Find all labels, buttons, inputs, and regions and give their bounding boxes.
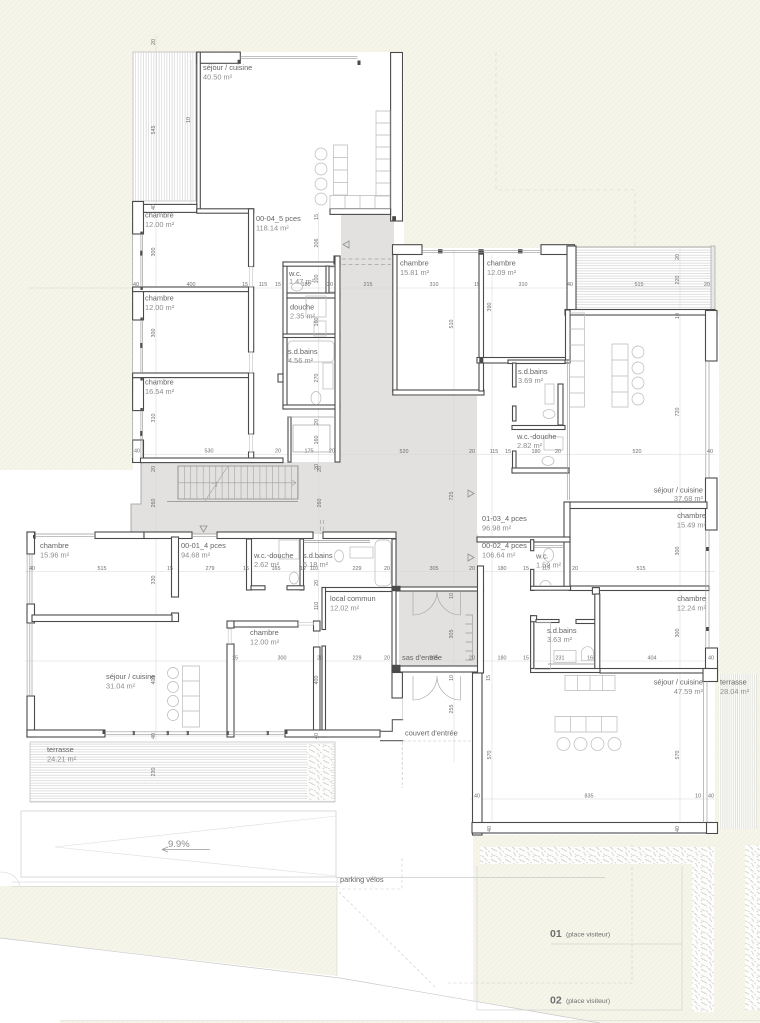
svg-text:31.04 m²: 31.04 m² xyxy=(106,682,136,691)
svg-text:520: 520 xyxy=(400,449,409,455)
svg-text:w.c.-douche: w.c.-douche xyxy=(253,551,293,560)
svg-text:15: 15 xyxy=(474,282,480,288)
svg-text:20: 20 xyxy=(275,449,281,455)
svg-text:local commun: local commun xyxy=(330,594,376,603)
svg-text:couvert d'entrée: couvert d'entrée xyxy=(405,729,458,738)
svg-text:chambre: chambre xyxy=(145,378,174,387)
svg-text:s.d.bains: s.d.bains xyxy=(518,367,548,376)
svg-text:15: 15 xyxy=(505,449,511,455)
svg-text:12.02 m²: 12.02 m² xyxy=(330,604,360,613)
svg-text:37.68 m²: 37.68 m² xyxy=(674,494,704,503)
svg-text:20: 20 xyxy=(572,566,578,572)
svg-text:12: 12 xyxy=(300,566,306,572)
svg-text:20: 20 xyxy=(555,449,561,455)
svg-text:180: 180 xyxy=(532,449,541,455)
svg-text:w.c.-douche: w.c.-douche xyxy=(516,432,556,441)
svg-text:chambre: chambre xyxy=(145,211,174,220)
svg-text:12.24 m²: 12.24 m² xyxy=(677,604,707,613)
svg-text:3.69 m²: 3.69 m² xyxy=(518,376,544,385)
svg-text:2.35 m²: 2.35 m² xyxy=(290,312,316,321)
svg-text:160: 160 xyxy=(314,318,320,327)
svg-text:94.68 m²: 94.68 m² xyxy=(181,551,211,560)
svg-text:20: 20 xyxy=(151,466,157,472)
svg-text:20: 20 xyxy=(384,656,390,662)
svg-text:510: 510 xyxy=(449,320,455,329)
svg-text:60: 60 xyxy=(131,730,136,735)
svg-text:s.d.bains: s.d.bains xyxy=(547,626,577,635)
svg-text:20: 20 xyxy=(675,254,681,260)
svg-text:400: 400 xyxy=(187,282,196,288)
svg-text:279: 279 xyxy=(206,566,215,572)
svg-text:100: 100 xyxy=(314,275,320,284)
svg-text:chambre: chambre xyxy=(145,294,174,303)
svg-text:40.50 m²: 40.50 m² xyxy=(203,73,233,82)
svg-text:20: 20 xyxy=(317,656,323,662)
svg-text:10: 10 xyxy=(675,313,681,319)
svg-text:96.98 m²: 96.98 m² xyxy=(482,524,512,533)
svg-text:16: 16 xyxy=(587,656,593,662)
svg-text:400: 400 xyxy=(314,676,320,685)
svg-text:305: 305 xyxy=(449,630,455,639)
svg-text:(place visiteur): (place visiteur) xyxy=(566,998,610,1005)
svg-text:20: 20 xyxy=(327,282,333,288)
svg-text:40: 40 xyxy=(151,733,157,739)
svg-text:10: 10 xyxy=(449,593,455,599)
svg-text:séjour / cuisine: séjour / cuisine xyxy=(106,672,155,681)
svg-text:330: 330 xyxy=(151,576,157,585)
svg-text:215: 215 xyxy=(364,282,373,288)
svg-text:02: 02 xyxy=(550,995,562,1007)
svg-text:15: 15 xyxy=(242,282,248,288)
svg-text:20: 20 xyxy=(314,419,320,425)
svg-text:chambre: chambre xyxy=(487,259,516,268)
svg-text:400: 400 xyxy=(151,676,157,685)
svg-text:40: 40 xyxy=(707,449,713,455)
svg-text:160: 160 xyxy=(314,436,320,445)
svg-text:terrasse: terrasse xyxy=(720,678,747,687)
svg-text:530: 530 xyxy=(205,449,214,455)
svg-text:60: 60 xyxy=(165,730,170,735)
svg-text:12.00 m²: 12.00 m² xyxy=(250,638,280,647)
svg-text:40: 40 xyxy=(708,794,714,800)
svg-text:9.9%: 9.9% xyxy=(168,839,190,850)
svg-text:40: 40 xyxy=(487,826,493,832)
svg-text:15: 15 xyxy=(275,282,281,288)
svg-text:chambre: chambre xyxy=(40,541,69,550)
svg-text:310: 310 xyxy=(430,282,439,288)
svg-text:115: 115 xyxy=(542,566,551,572)
svg-text:15.49 m²: 15.49 m² xyxy=(677,521,707,530)
svg-text:180: 180 xyxy=(498,566,507,572)
svg-text:106.64 m²: 106.64 m² xyxy=(482,551,516,560)
svg-text:180: 180 xyxy=(302,282,311,288)
svg-text:47.59 m²: 47.59 m² xyxy=(674,687,704,696)
svg-text:01: 01 xyxy=(550,928,562,940)
svg-text:15.96 m²: 15.96 m² xyxy=(40,551,70,560)
svg-text:230: 230 xyxy=(151,768,157,777)
svg-text:douche: douche xyxy=(290,303,314,312)
svg-text:720: 720 xyxy=(675,408,681,417)
svg-text:110: 110 xyxy=(314,602,320,611)
svg-text:260: 260 xyxy=(317,499,323,508)
svg-text:séjour / cuisine: séjour / cuisine xyxy=(203,63,252,72)
svg-text:terrasse: terrasse xyxy=(47,745,74,754)
svg-text:10: 10 xyxy=(695,794,701,800)
svg-text:260: 260 xyxy=(151,499,157,508)
svg-text:3.63 m²: 3.63 m² xyxy=(547,635,573,644)
svg-text:60: 60 xyxy=(185,730,190,735)
svg-text:570: 570 xyxy=(675,751,681,760)
svg-text:255: 255 xyxy=(449,705,455,714)
svg-text:220: 220 xyxy=(675,276,681,285)
svg-text:60: 60 xyxy=(265,730,270,735)
svg-text:229: 229 xyxy=(353,566,362,572)
svg-text:300: 300 xyxy=(151,248,157,257)
svg-text:390: 390 xyxy=(487,303,493,312)
svg-text:chambre: chambre xyxy=(400,259,429,268)
svg-text:570: 570 xyxy=(487,751,493,760)
svg-text:10: 10 xyxy=(449,675,455,681)
svg-text:20: 20 xyxy=(317,466,323,472)
svg-text:515: 515 xyxy=(635,282,644,288)
svg-text:310: 310 xyxy=(519,282,528,288)
svg-text:chambre: chambre xyxy=(677,594,706,603)
svg-text:01-03_4 pces: 01-03_4 pces xyxy=(482,514,527,523)
svg-text:175: 175 xyxy=(305,449,314,455)
svg-text:w.c.: w.c. xyxy=(535,552,549,561)
svg-text:15: 15 xyxy=(314,214,320,220)
svg-text:16.54 m²: 16.54 m² xyxy=(145,387,175,396)
svg-text:180: 180 xyxy=(498,656,507,662)
svg-text:15: 15 xyxy=(523,656,529,662)
svg-text:s.d.bains: s.d.bains xyxy=(288,347,318,356)
svg-text:40: 40 xyxy=(29,566,35,572)
svg-text:15: 15 xyxy=(523,566,529,572)
svg-text:60: 60 xyxy=(225,730,230,735)
svg-text:(place visiteur): (place visiteur) xyxy=(566,932,610,939)
svg-text:20: 20 xyxy=(151,39,157,45)
svg-text:725: 725 xyxy=(449,492,455,501)
svg-text:305: 305 xyxy=(430,656,439,662)
svg-text:20: 20 xyxy=(384,566,390,572)
svg-text:20: 20 xyxy=(704,282,710,288)
svg-text:300: 300 xyxy=(675,547,681,556)
svg-text:00-02_4 pces: 00-02_4 pces xyxy=(482,541,527,550)
svg-text:20: 20 xyxy=(469,449,475,455)
svg-text:115: 115 xyxy=(259,282,268,288)
svg-text:40: 40 xyxy=(708,656,714,662)
svg-text:300: 300 xyxy=(151,329,157,338)
svg-text:270: 270 xyxy=(314,374,320,383)
svg-text:118.14 m²: 118.14 m² xyxy=(256,224,289,233)
svg-text:40: 40 xyxy=(314,733,320,739)
svg-text:404: 404 xyxy=(648,656,657,662)
svg-text:15: 15 xyxy=(486,675,492,681)
svg-text:28.04 m²: 28.04 m² xyxy=(720,687,750,696)
svg-text:115: 115 xyxy=(490,449,499,455)
svg-text:15: 15 xyxy=(243,566,249,572)
svg-text:515: 515 xyxy=(637,566,646,572)
svg-text:chambre: chambre xyxy=(250,628,279,637)
svg-text:12.00 m²: 12.00 m² xyxy=(145,220,175,229)
svg-text:40: 40 xyxy=(134,449,140,455)
svg-text:40: 40 xyxy=(675,826,681,832)
svg-text:20: 20 xyxy=(469,656,475,662)
svg-text:chambre: chambre xyxy=(677,511,706,520)
svg-text:15.81 m²: 15.81 m² xyxy=(400,268,430,277)
svg-text:229: 229 xyxy=(353,656,362,662)
svg-text:545: 545 xyxy=(151,126,157,135)
svg-text:520: 520 xyxy=(633,449,642,455)
svg-text:24.21 m²: 24.21 m² xyxy=(47,755,77,764)
svg-text:231: 231 xyxy=(556,656,565,662)
svg-text:40: 40 xyxy=(133,282,139,288)
svg-text:00-01_4 pces: 00-01_4 pces xyxy=(181,541,226,550)
svg-text:séjour / cuisine: séjour / cuisine xyxy=(654,678,703,687)
svg-text:165: 165 xyxy=(272,566,281,572)
svg-text:parking vélos: parking vélos xyxy=(340,875,384,884)
svg-text:310: 310 xyxy=(151,414,157,423)
svg-text:20: 20 xyxy=(329,449,335,455)
svg-text:12.09 m²: 12.09 m² xyxy=(487,268,517,277)
svg-text:00-04_5 pces: 00-04_5 pces xyxy=(256,214,301,223)
svg-text:s.d.bains: s.d.bains xyxy=(303,551,333,560)
svg-text:4.56 m²: 4.56 m² xyxy=(288,356,314,365)
svg-text:20: 20 xyxy=(469,566,475,572)
svg-text:15: 15 xyxy=(232,656,238,662)
svg-text:40: 40 xyxy=(474,794,480,800)
svg-text:10: 10 xyxy=(186,117,192,123)
svg-text:12.00 m²: 12.00 m² xyxy=(145,303,175,312)
svg-text:40: 40 xyxy=(151,204,157,210)
svg-text:300: 300 xyxy=(675,629,681,638)
svg-text:835: 835 xyxy=(585,794,594,800)
svg-text:305: 305 xyxy=(430,566,439,572)
svg-text:300: 300 xyxy=(278,656,287,662)
svg-text:110: 110 xyxy=(310,566,319,572)
svg-text:20: 20 xyxy=(314,580,320,586)
svg-text:206: 206 xyxy=(314,239,320,248)
svg-text:515: 515 xyxy=(98,566,107,572)
svg-text:40: 40 xyxy=(567,282,573,288)
svg-text:15: 15 xyxy=(167,566,173,572)
